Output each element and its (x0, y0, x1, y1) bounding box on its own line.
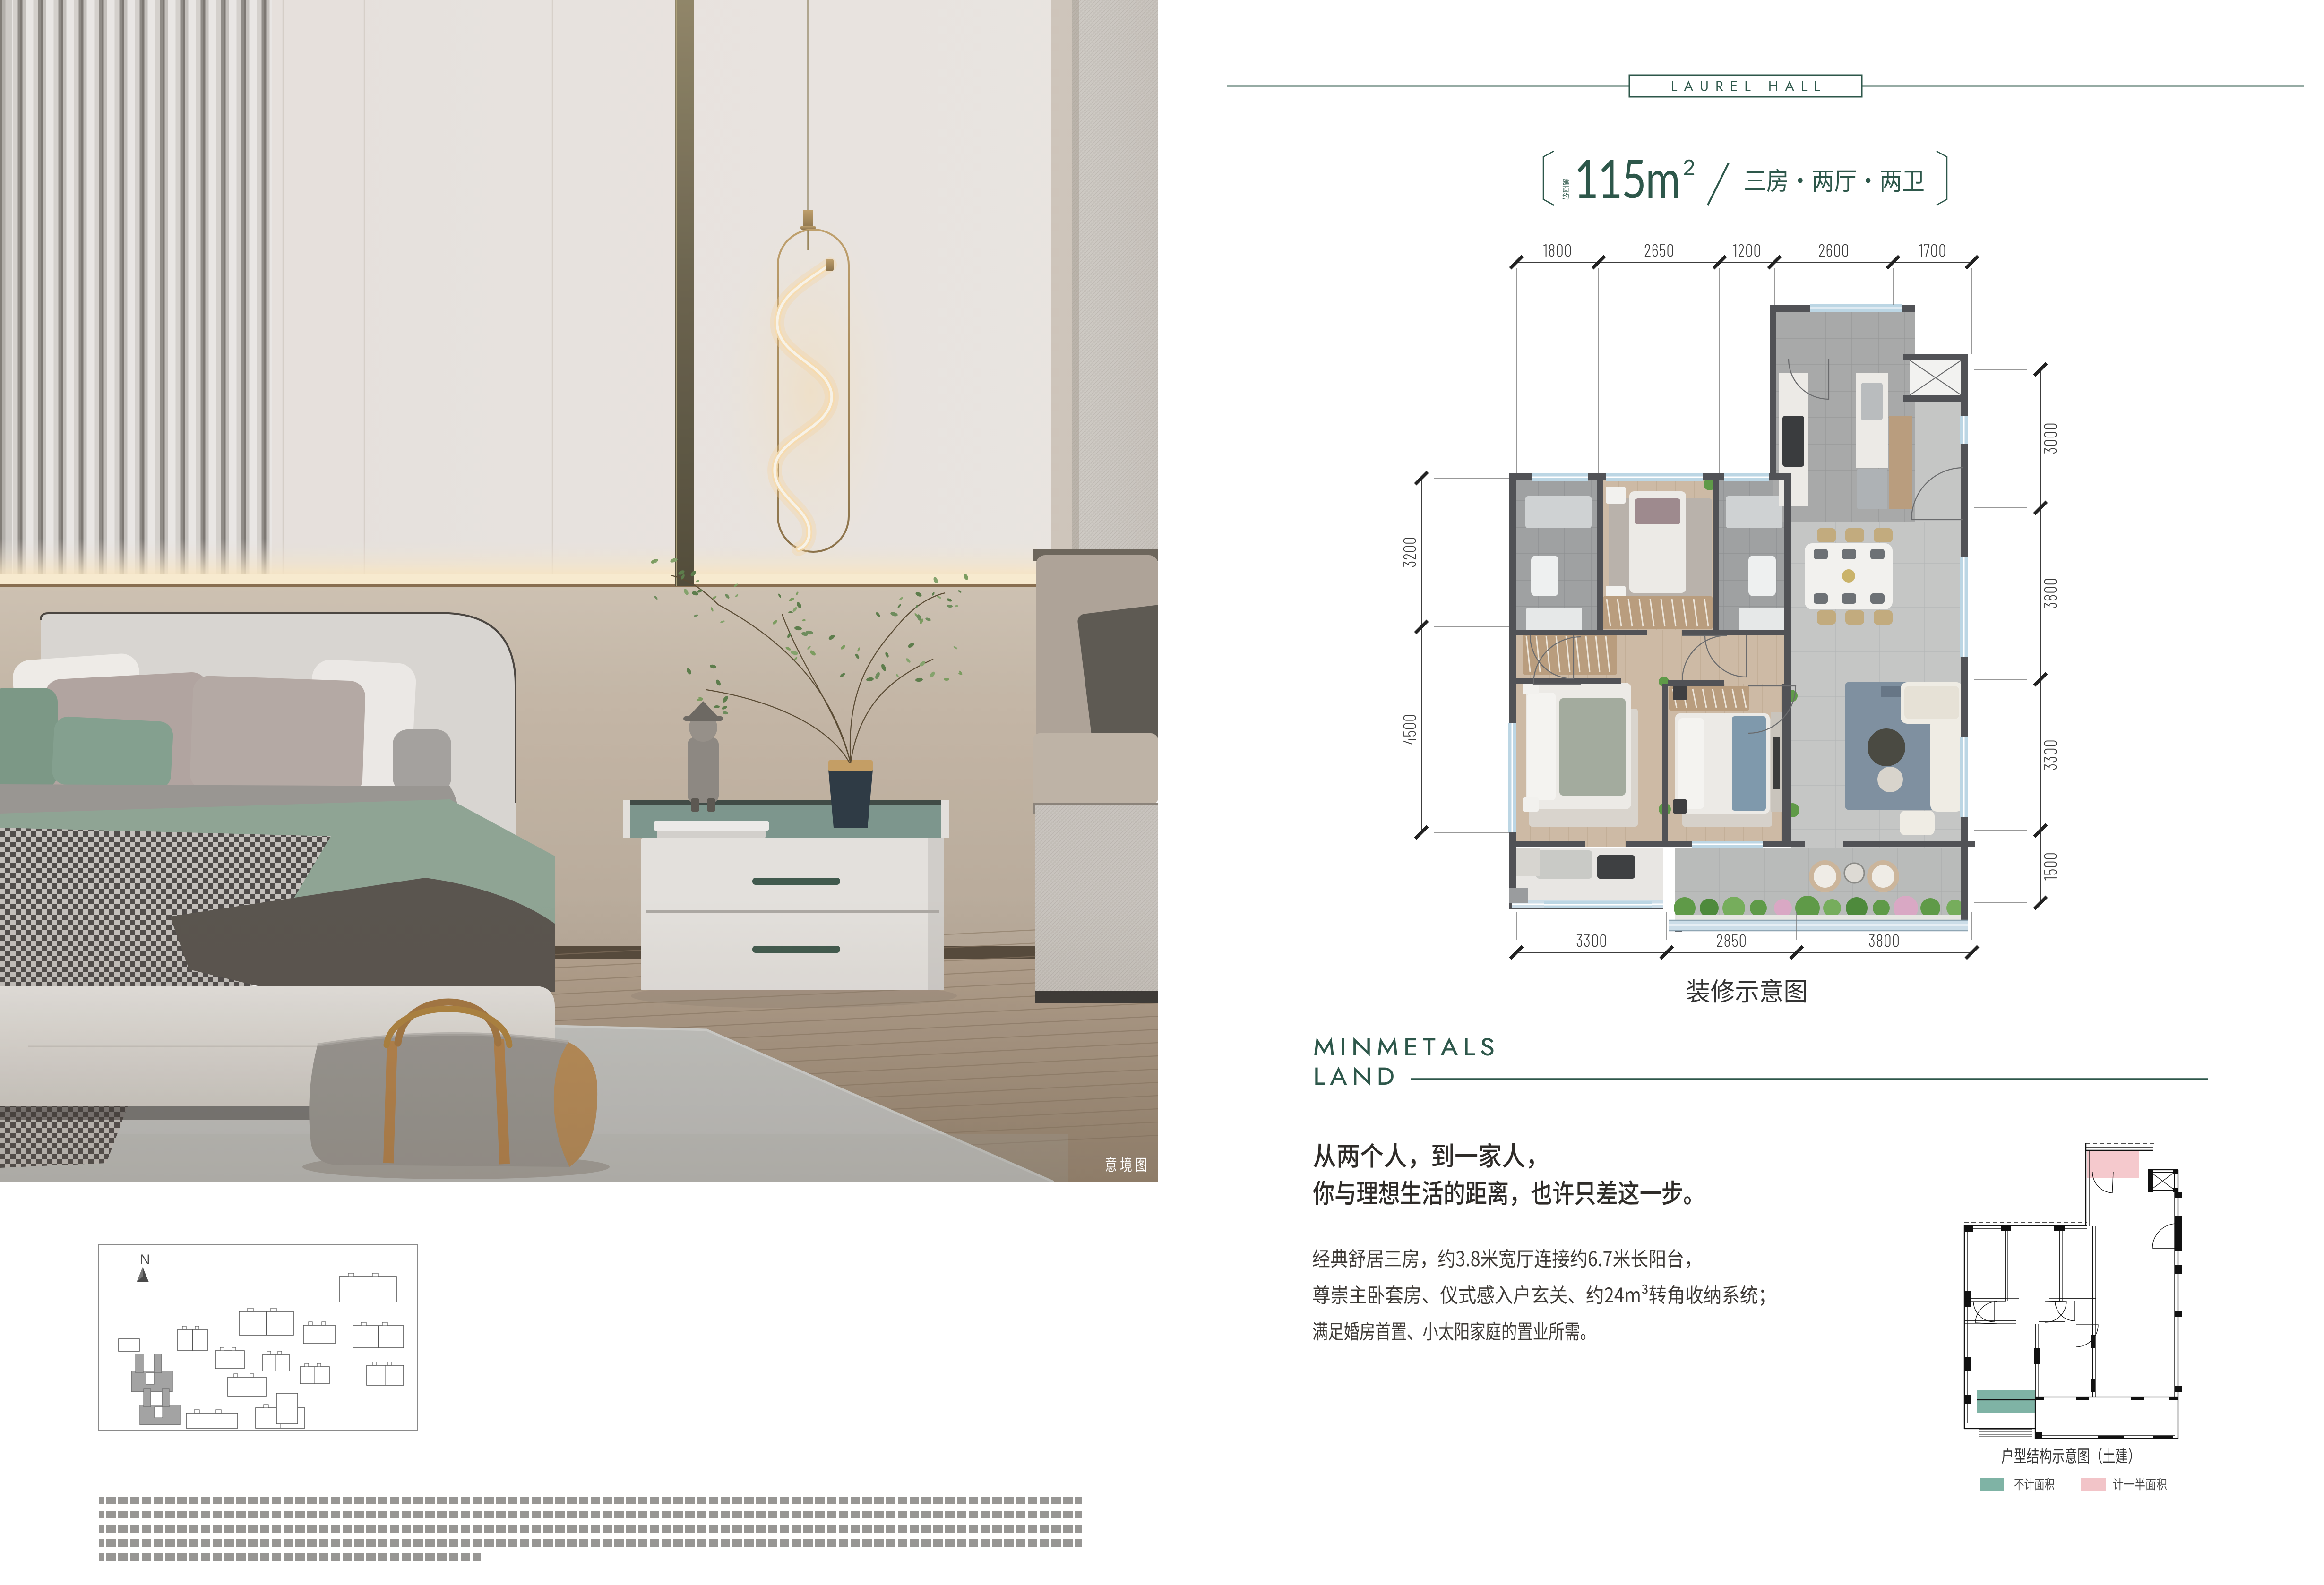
svg-text:N: N (140, 1252, 150, 1268)
